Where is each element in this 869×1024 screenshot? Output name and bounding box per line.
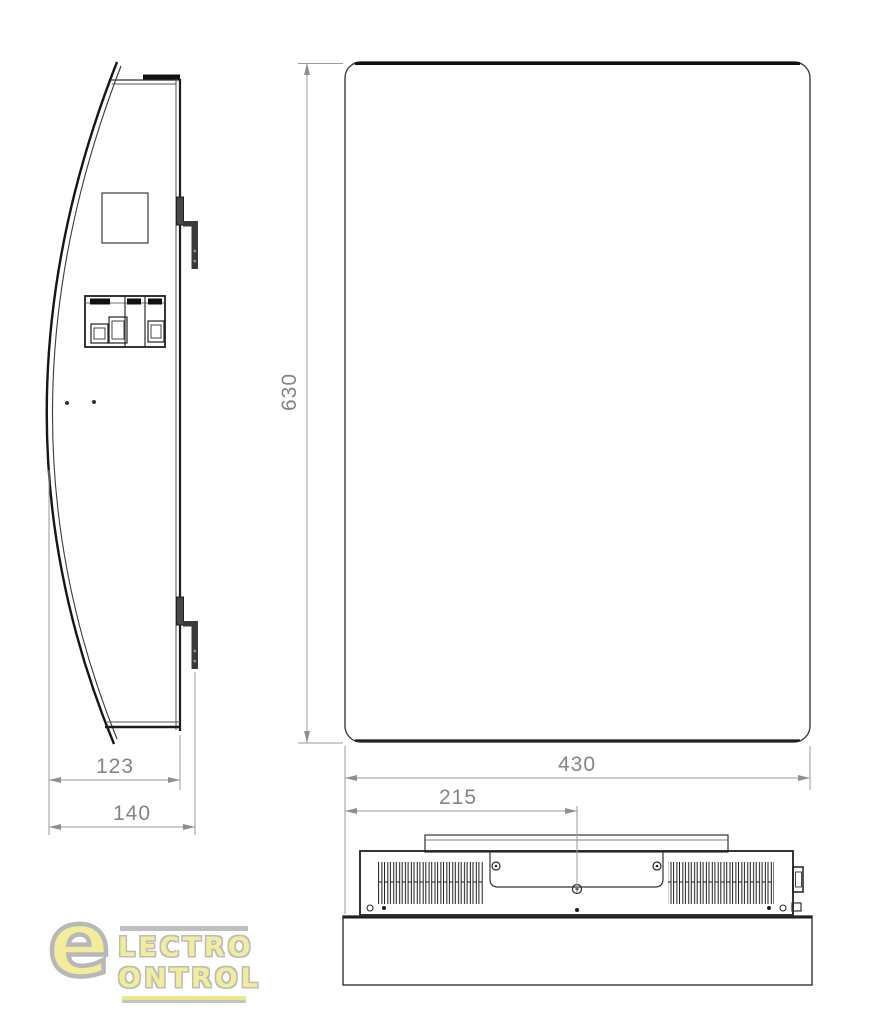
dimensions (49, 63, 810, 914)
indicator-dot (65, 401, 69, 405)
dimension-label-123: 123 (96, 755, 134, 778)
dimension-arrows (49, 63, 810, 830)
door-curve-inner (52, 66, 121, 739)
vent-grille-left (378, 862, 484, 904)
logo-top-bar (120, 926, 248, 931)
breaker-handle (148, 299, 162, 305)
brand-logo: e LECTRO ONTROL (42, 912, 282, 1017)
logo-e-mark: e (48, 898, 110, 990)
drawing-canvas: 123 140 630 430 215 e LECTRO ONTROL (0, 0, 869, 1024)
base-screw (767, 906, 771, 910)
technical-drawing: 123 140 630 430 215 (0, 0, 869, 1024)
dimension-label-430: 430 (558, 753, 596, 776)
base-screw (780, 905, 786, 911)
dimension-label-630: 630 (278, 373, 301, 411)
breaker-handle (90, 299, 110, 305)
base-screw (575, 908, 579, 912)
dimension-labels: 123 140 630 430 215 (96, 373, 596, 825)
dimension-label-215: 215 (439, 786, 477, 809)
logo-text-line2: ONTROL (118, 965, 261, 992)
display-window (102, 193, 148, 243)
front-view (345, 62, 810, 742)
indicator-dot (92, 400, 96, 404)
base-screw (382, 906, 386, 910)
front-cover-profile (343, 916, 812, 985)
door-curve-outer (47, 62, 117, 744)
side-view (47, 62, 198, 744)
logo-text-line1: LECTRO (118, 934, 254, 961)
base-screw (367, 905, 373, 911)
front-panel (345, 62, 810, 742)
breaker-handle (127, 299, 141, 305)
vent-grille-right (668, 862, 774, 904)
logo-underline (122, 996, 246, 1000)
breaker-block (85, 296, 165, 347)
dimension-label-140: 140 (113, 802, 151, 825)
